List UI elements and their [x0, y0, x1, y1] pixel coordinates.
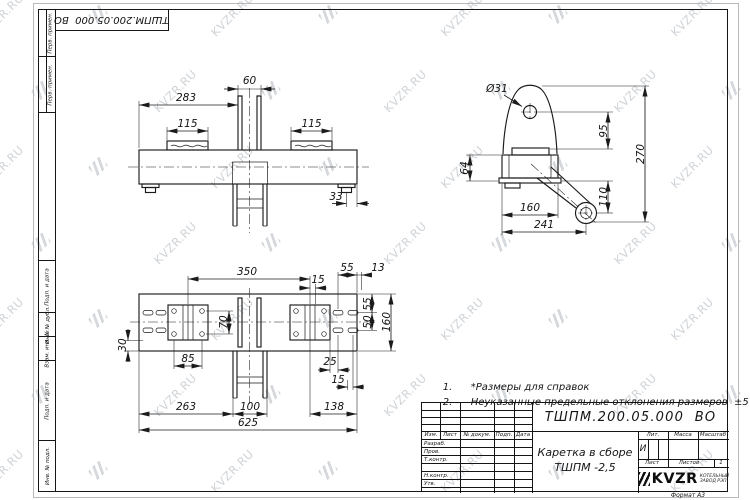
dim-text-70: 70 [218, 315, 230, 329]
dim-text-263: 263 [176, 401, 196, 413]
col-date: Дата [516, 432, 530, 438]
dim-55-right: 55 [358, 294, 396, 313]
dim-dia31: Ø31 [485, 83, 522, 107]
lit-label: Лит. [647, 432, 660, 438]
dim-95: 95 [537, 112, 613, 149]
dim-625: 625 [139, 417, 357, 430]
dim-text-95: 95 [598, 124, 610, 138]
dim-55-top: 55 [338, 262, 357, 309]
side-view [499, 85, 597, 223]
dim-25: 25 [318, 335, 350, 373]
dim-100: 100 [233, 398, 267, 417]
col-list: Лист [443, 432, 457, 438]
part-name-line2: ТШПМ -2,5 [554, 460, 615, 475]
dim-text-138: 138 [324, 401, 344, 413]
col-izm: Изм. [425, 432, 438, 438]
dim-text-55-right: 55 [362, 297, 374, 311]
row-nkontr: Н.контр. [424, 473, 449, 479]
dim-text-dia31: Ø31 [485, 83, 508, 95]
dim-241: 241 [502, 218, 586, 235]
scale-label: Масштаб [700, 432, 726, 438]
title-block-designation: ТШПМ.200.05.000 ВО [532, 403, 729, 431]
dim-text-60: 60 [243, 75, 257, 87]
dim-70: 70 [206, 311, 233, 334]
dim-115-left: 115 [167, 118, 208, 140]
dim-115-right: 115 [291, 118, 332, 140]
dim-13: 13 [357, 262, 385, 290]
title-block: ТШПМ.200.05.000 ВО Изм. Лист № докум. По… [421, 402, 728, 492]
dim-text-241: 241 [534, 219, 554, 231]
row-tkontr: Т.контр. [424, 457, 448, 463]
lit-value: И [640, 444, 647, 454]
side-view-dimensions: Ø31 95 110 270 [459, 83, 649, 235]
mass-label: Масса [674, 432, 692, 438]
dim-text-13: 13 [371, 262, 384, 274]
dim-text-15-top: 15 [311, 274, 325, 286]
dim-15-top: 15 [299, 274, 327, 304]
dim-50-right: 50 [358, 313, 377, 331]
dim-text-160-plan: 160 [381, 312, 393, 332]
dim-text-30: 30 [117, 338, 129, 352]
row-utv: Утв. [424, 481, 436, 487]
dim-text-100: 100 [240, 401, 260, 413]
logo-subtext: КОТЕЛЬНЫЙ ЗАВОД РЭП [700, 474, 729, 484]
dim-text-85: 85 [181, 353, 195, 365]
dim-text-270: 270 [635, 144, 647, 164]
dim-110: 110 [562, 181, 613, 213]
dim-text-625: 625 [238, 417, 258, 429]
sheet-label: Лист [645, 460, 659, 466]
dim-text-64: 64 [459, 161, 471, 174]
title-block-part-name: Каретка в сборе ТШПМ -2,5 [532, 431, 638, 493]
dim-33: 33 [329, 185, 369, 207]
company-logo: KVZR КОТЕЛЬНЫЙ ЗАВОД РЭП [638, 467, 729, 491]
dim-text-55-top: 55 [340, 262, 354, 274]
dim-350: 350 [188, 266, 310, 304]
plan-view [130, 288, 368, 404]
dim-text-160-side: 160 [520, 202, 540, 214]
format-label: Формат А3 [648, 492, 728, 499]
dim-160-side: 160 [502, 184, 558, 218]
sheets-value: 1 [719, 460, 723, 466]
dim-text-33: 33 [329, 191, 342, 203]
row-razrab: Разраб. [424, 441, 446, 447]
dim-text-115-right: 115 [301, 118, 321, 130]
dim-text-110: 110 [598, 187, 610, 207]
dim-text-25: 25 [323, 356, 337, 368]
sheets-label: Листов [679, 460, 700, 466]
dim-85: 85 [174, 340, 202, 369]
dim-138: 138 [310, 340, 357, 433]
dim-text-15-bottom: 15 [331, 374, 345, 386]
part-name-line1: Каретка в сборе [538, 445, 633, 460]
rotated-designation-stamp: ТШПМ.200.05.000 ВО [55, 9, 169, 31]
drawing-sheet: KVZR.RUKVZR.RUKVZR.RUKVZR.RUKVZR.RUKVZR.… [0, 0, 750, 500]
dim-64: 64 [459, 155, 501, 181]
col-doc: № докум. [463, 432, 490, 438]
dim-text-50-right: 50 [362, 315, 374, 329]
logo-text: KVZR [652, 471, 698, 487]
logo-bars-icon [638, 472, 650, 486]
dim-text-115-left: 115 [177, 118, 197, 130]
col-sign: Подп. [496, 432, 513, 438]
front-view [128, 88, 369, 233]
row-prov: Пров. [424, 449, 440, 455]
dim-text-350: 350 [237, 266, 257, 278]
dim-text-283: 283 [176, 92, 196, 104]
